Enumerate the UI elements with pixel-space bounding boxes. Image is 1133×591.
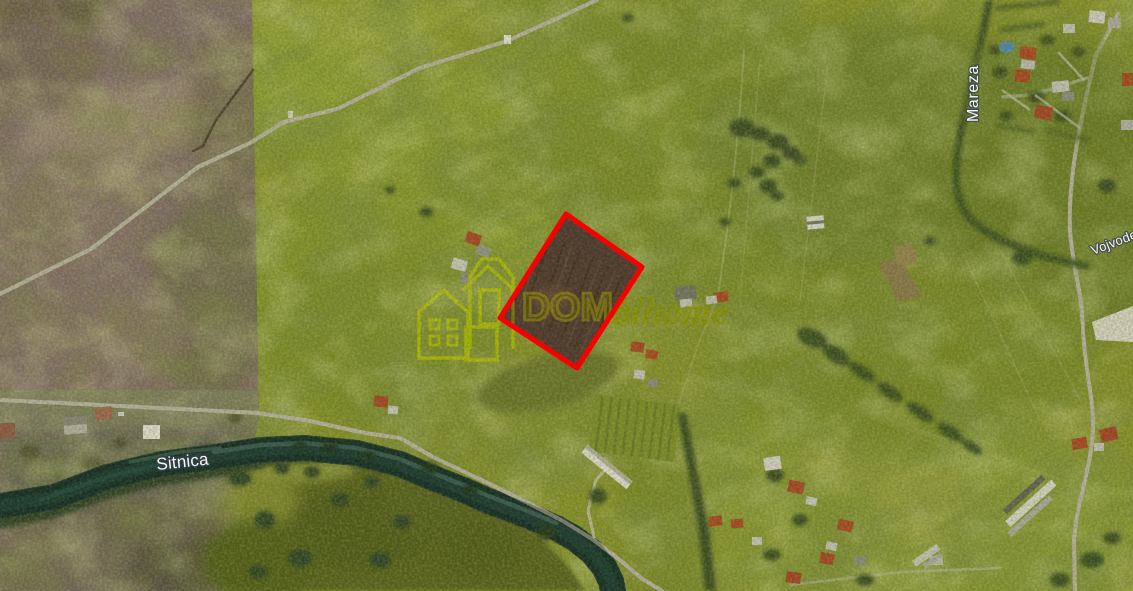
svg-text:Mareza: Mareza [965, 65, 982, 122]
